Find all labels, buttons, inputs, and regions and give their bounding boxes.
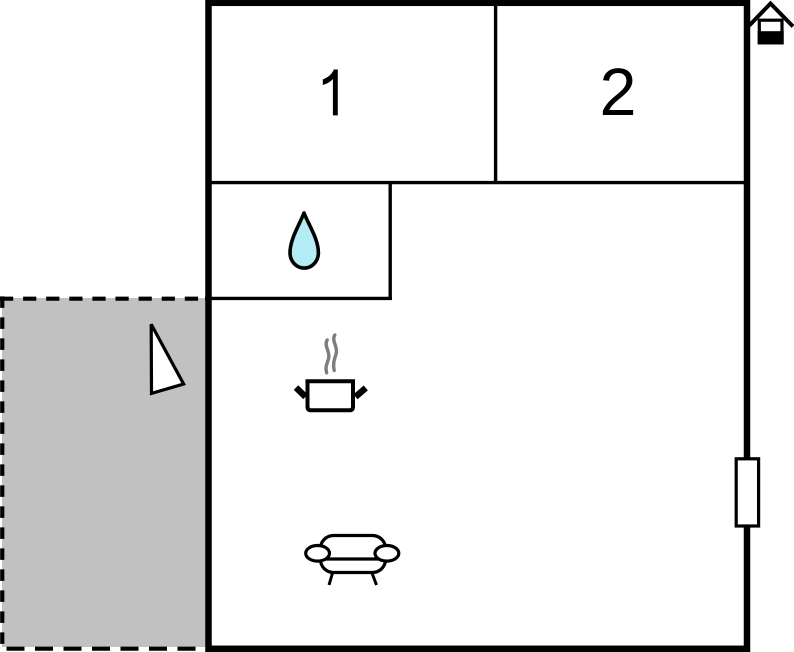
svg-text:2: 2 xyxy=(600,56,637,130)
